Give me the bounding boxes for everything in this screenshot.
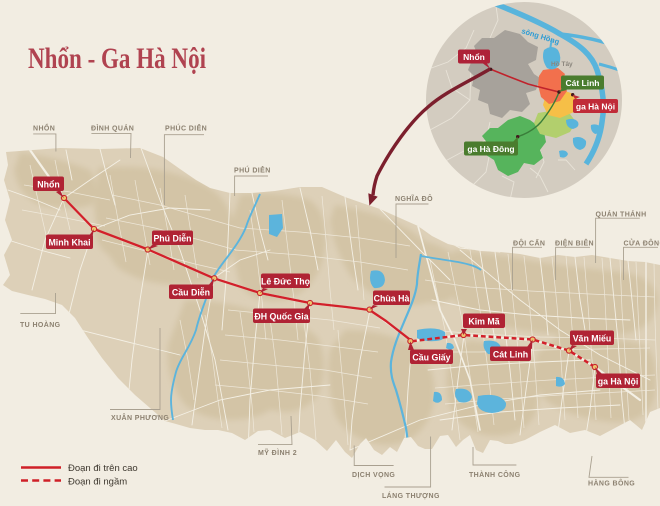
svg-text:LÁNG THƯỢNG: LÁNG THƯỢNG [382, 491, 440, 500]
svg-text:THÀNH CÔNG: THÀNH CÔNG [469, 470, 521, 479]
svg-text:Nhổn: Nhổn [37, 179, 59, 189]
svg-text:Đoạn đi trên cao: Đoạn đi trên cao [68, 463, 138, 474]
svg-text:PHÚC DIỄN: PHÚC DIỄN [165, 124, 207, 133]
svg-text:ĐIỆN BIÊN: ĐIỆN BIÊN [555, 239, 594, 248]
svg-text:Cầu Diễn: Cầu Diễn [172, 287, 210, 297]
svg-text:ga Hà Nội: ga Hà Nội [598, 376, 639, 386]
svg-text:ga Hà Nội: ga Hà Nội [576, 102, 615, 112]
svg-text:Phú Diễn: Phú Diễn [153, 233, 191, 243]
svg-text:MỸ ĐÌNH 2: MỸ ĐÌNH 2 [258, 448, 297, 457]
svg-text:DỊCH VỌNG: DỊCH VỌNG [352, 472, 395, 479]
svg-text:Minh Khai: Minh Khai [48, 237, 90, 247]
svg-text:Văn Miếu: Văn Miếu [573, 333, 612, 343]
svg-text:PHÚ DIỄN: PHÚ DIỄN [234, 166, 271, 175]
svg-text:Lê Đức Thọ: Lê Đức Thọ [261, 276, 311, 286]
svg-text:ĐÌNH QUÁN: ĐÌNH QUÁN [91, 124, 134, 133]
svg-text:NHỔN: NHỔN [33, 124, 55, 133]
svg-text:TU HOÀNG: TU HOÀNG [20, 320, 61, 329]
svg-text:Nhổn - Ga Hà Nội: Nhổn - Ga Hà Nội [28, 42, 206, 75]
svg-text:Cát Linh: Cát Linh [493, 349, 528, 359]
svg-text:QUÁN THÁNH: QUÁN THÁNH [596, 210, 647, 219]
svg-text:XUÂN PHƯƠNG: XUÂN PHƯƠNG [111, 413, 169, 422]
svg-text:Kim Mã: Kim Mã [468, 316, 499, 326]
svg-text:Đoạn đi ngầm: Đoạn đi ngầm [68, 477, 127, 488]
svg-text:ĐH Quốc Gia: ĐH Quốc Gia [254, 311, 308, 321]
svg-text:Cát Linh: Cát Linh [566, 78, 600, 88]
svg-text:CỬA ĐÔNG: CỬA ĐÔNG [624, 239, 660, 248]
svg-text:Hồ Tây: Hồ Tây [551, 59, 573, 68]
svg-text:NGHĨA ĐÔ: NGHĨA ĐÔ [395, 194, 433, 203]
svg-text:Cầu Giấy: Cầu Giấy [412, 352, 450, 362]
svg-text:HÀNG BÔNG: HÀNG BÔNG [588, 479, 635, 488]
svg-text:Chùa Hà: Chùa Hà [374, 293, 410, 303]
svg-text:ga Hà Đông: ga Hà Đông [467, 144, 514, 154]
svg-text:Nhổn: Nhổn [463, 52, 485, 62]
